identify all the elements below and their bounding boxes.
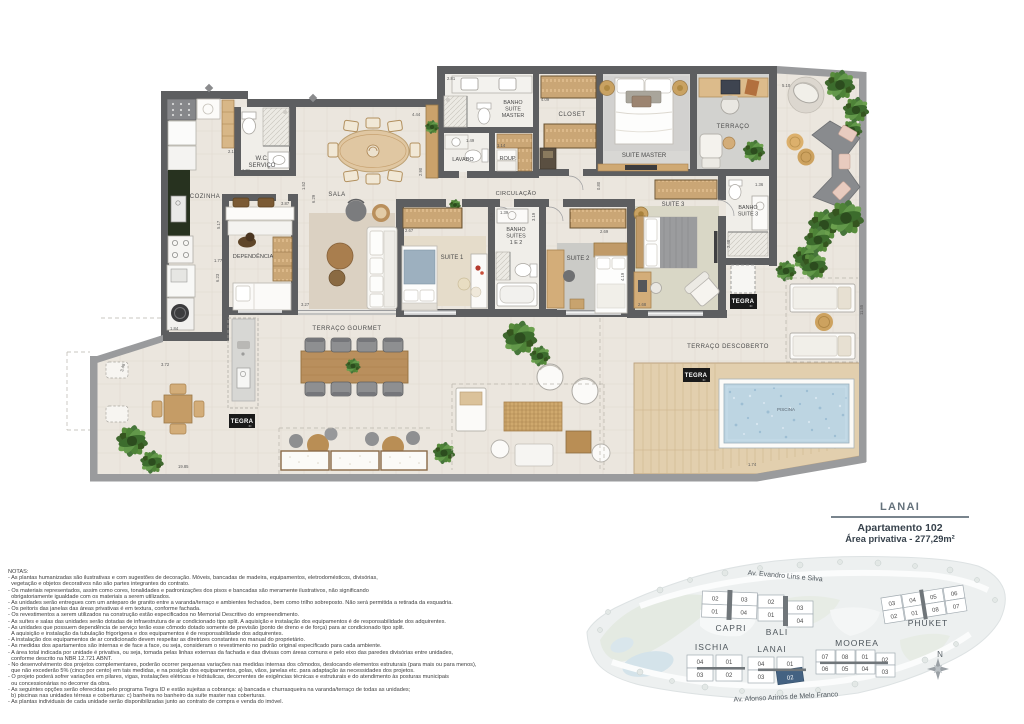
svg-text:4.19: 4.19 [620,272,625,281]
svg-text:COZINHA: COZINHA [190,194,221,200]
svg-text:6.23: 6.23 [215,273,220,282]
svg-text:11.55: 11.55 [859,304,864,315]
svg-text:1.84: 1.84 [170,326,179,331]
svg-text:W.C.: W.C. [256,156,269,162]
svg-text:1.81: 1.81 [242,168,251,173]
svg-text:SALA: SALA [328,192,345,198]
svg-text:CIRCULAÇÃO: CIRCULAÇÃO [496,190,537,197]
svg-text:CAPRI: CAPRI [716,623,747,633]
svg-text:SERVIÇO: SERVIÇO [249,163,276,169]
svg-text:3.72: 3.72 [161,362,170,367]
svg-text:03: 03 [882,670,889,676]
svg-text:2.69: 2.69 [600,229,609,234]
svg-text:1.14: 1.14 [497,143,506,148]
svg-text:06: 06 [822,667,829,673]
svg-text:ID: ID [249,424,252,428]
svg-text:03: 03 [797,606,804,612]
svg-text:04: 04 [797,619,804,625]
svg-text:0.80: 0.80 [596,181,601,190]
svg-text:3.27: 3.27 [301,302,310,307]
svg-text:3.19: 3.19 [489,212,494,221]
svg-text:02: 02 [712,596,720,602]
svg-text:DEPENDÊNCIA: DEPENDÊNCIA [233,252,274,260]
svg-text:1 E 2: 1 E 2 [510,240,523,246]
svg-text:02: 02 [882,658,889,664]
svg-text:1.77: 1.77 [214,258,223,263]
svg-text:04: 04 [862,667,869,673]
svg-text:CLOSET: CLOSET [558,112,585,118]
svg-text:LANAI: LANAI [757,644,787,654]
svg-text:01: 01 [787,662,794,668]
svg-text:03: 03 [758,675,765,681]
svg-text:2.90: 2.90 [418,167,423,176]
svg-text:2.68: 2.68 [638,302,647,307]
svg-text:MASTER: MASTER [502,113,525,119]
svg-text:04: 04 [740,610,748,616]
svg-text:01: 01 [726,660,733,666]
svg-text:SUITE 2: SUITE 2 [567,256,590,262]
svg-text:07: 07 [822,655,829,661]
svg-text:SUITE 3: SUITE 3 [662,202,685,208]
svg-text:SUITE 1: SUITE 1 [441,255,464,261]
svg-text:03: 03 [697,673,704,679]
svg-text:03: 03 [741,597,749,603]
svg-text:BANHO: BANHO [506,227,525,233]
svg-text:ID: ID [750,304,753,308]
svg-text:PHUKET: PHUKET [908,618,948,628]
svg-text:SUÍTE: SUÍTE [505,106,521,113]
svg-text:02: 02 [726,673,733,679]
svg-text:01: 01 [711,609,719,615]
svg-text:01: 01 [862,655,869,661]
svg-text:BANHO: BANHO [738,205,757,211]
svg-text:02: 02 [768,600,775,606]
svg-text:04: 04 [758,662,765,668]
svg-text:1.52: 1.52 [301,181,306,190]
svg-text:SUÍTES: SUÍTES [506,233,526,240]
svg-text:TERRAÇO DESCOBERTO: TERRAÇO DESCOBERTO [687,344,769,350]
svg-text:08: 08 [842,655,849,661]
svg-text:4.09: 4.09 [541,97,550,102]
svg-text:SUITE MASTER: SUITE MASTER [622,153,667,159]
svg-text:ISCHIA: ISCHIA [695,642,729,652]
svg-text:1.74: 1.74 [748,462,757,467]
svg-text:1.36: 1.36 [755,182,764,187]
svg-text:ID: ID [703,378,706,382]
svg-text:ROUP.: ROUP. [500,156,517,162]
svg-text:BANHO: BANHO [503,100,522,106]
svg-text:2.12: 2.12 [228,149,237,154]
svg-text:19.85: 19.85 [178,464,189,469]
svg-text:3.19: 3.19 [531,212,536,221]
svg-text:2.67: 2.67 [405,228,414,233]
svg-text:6.29: 6.29 [311,194,316,203]
svg-text:2.40: 2.40 [726,239,731,248]
svg-text:BALI: BALI [766,627,788,637]
svg-text:1.49: 1.49 [466,138,475,143]
svg-text:3.87: 3.87 [281,201,290,206]
svg-text:N: N [937,650,943,659]
svg-text:5.17: 5.17 [216,220,221,229]
svg-text:TERRAÇO GOURMET: TERRAÇO GOURMET [312,326,381,332]
svg-text:01: 01 [768,613,775,619]
svg-text:2.81: 2.81 [447,76,456,81]
svg-text:5.10: 5.10 [782,83,791,88]
svg-text:TERRAÇO: TERRAÇO [717,124,750,130]
svg-text:LAVABO: LAVABO [452,157,474,163]
svg-text:MOOREA: MOOREA [835,638,879,648]
svg-text:05: 05 [842,667,849,673]
svg-text:04: 04 [697,660,704,666]
svg-text:SUITE 3: SUITE 3 [738,212,758,218]
svg-text:4.44: 4.44 [412,112,421,117]
svg-text:1.39: 1.39 [500,210,509,215]
svg-text:PISCINA: PISCINA [777,407,795,412]
